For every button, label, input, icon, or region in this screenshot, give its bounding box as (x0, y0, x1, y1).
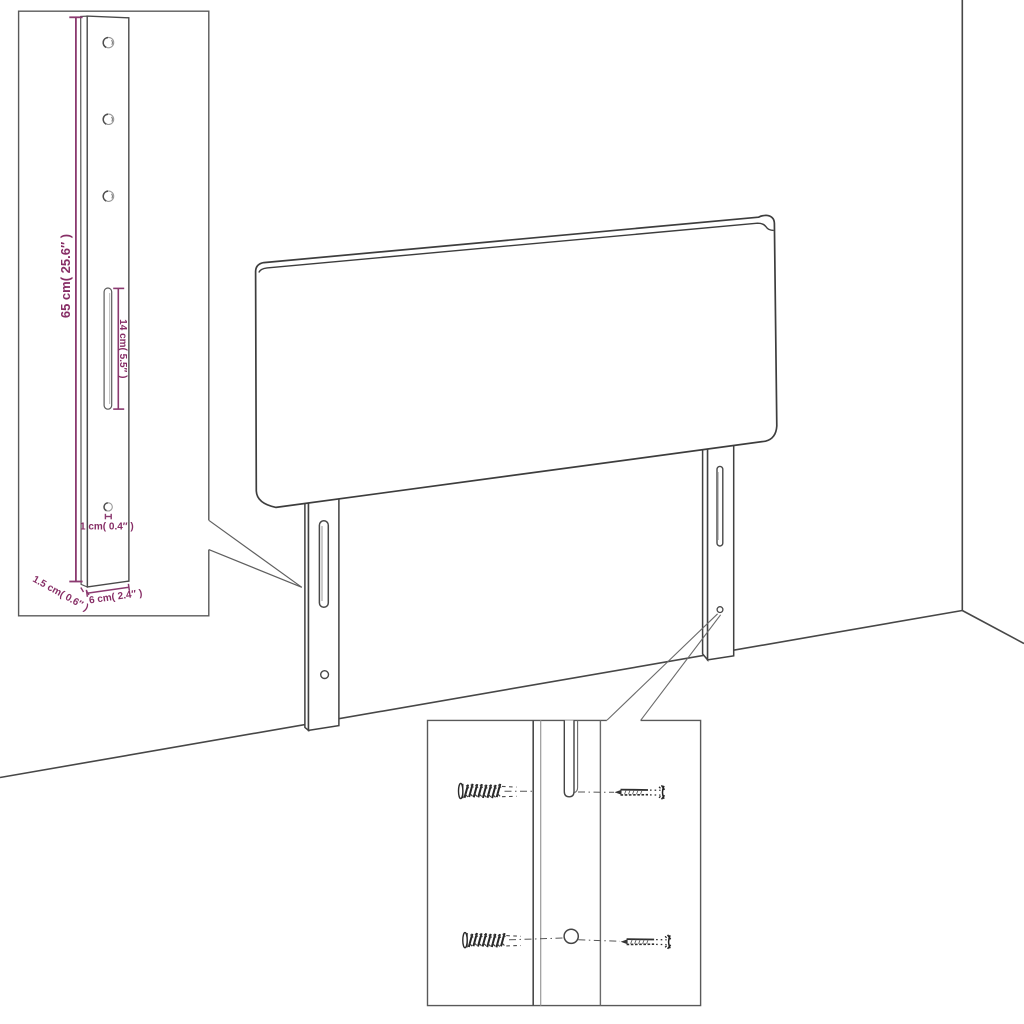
svg-text:1 cm( 0.4″ ): 1 cm( 0.4″ ) (80, 521, 134, 532)
svg-text:65 cm( 25.6″ ): 65 cm( 25.6″ ) (58, 234, 73, 318)
svg-text:6 cm( 2.4″ ): 6 cm( 2.4″ ) (88, 588, 143, 607)
svg-text:14 cm( 5.5″ ): 14 cm( 5.5″ ) (117, 319, 128, 378)
